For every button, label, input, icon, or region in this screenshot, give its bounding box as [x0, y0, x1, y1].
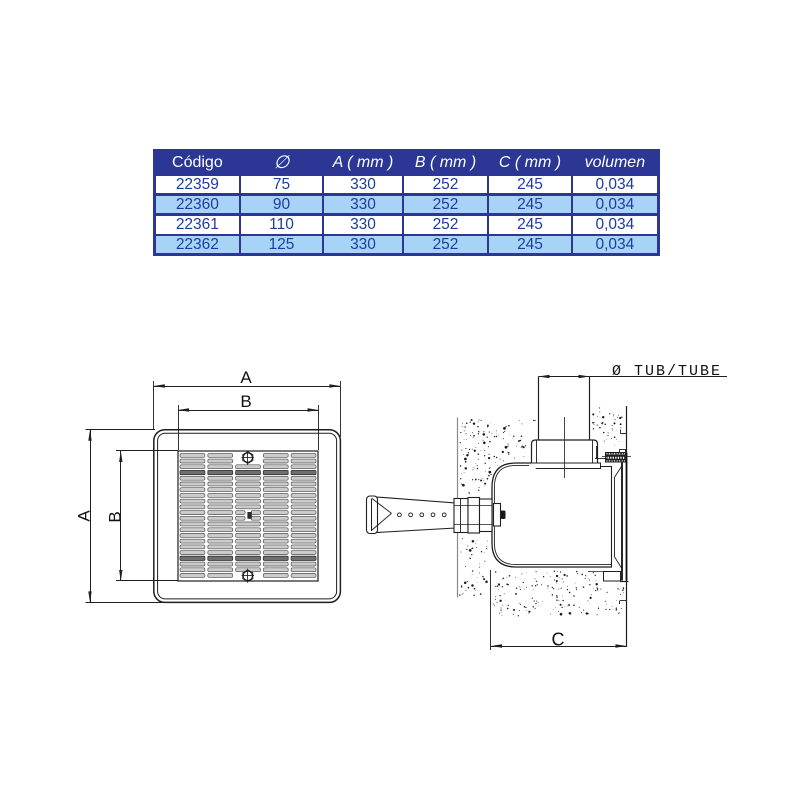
- svg-text:C: C: [552, 630, 565, 650]
- svg-text:Ø TUB/TUBE: Ø TUB/TUBE: [612, 363, 722, 380]
- svg-text:A: A: [75, 510, 94, 522]
- svg-text:B: B: [105, 511, 124, 522]
- svg-text:B: B: [240, 392, 251, 411]
- svg-text:A: A: [240, 368, 252, 387]
